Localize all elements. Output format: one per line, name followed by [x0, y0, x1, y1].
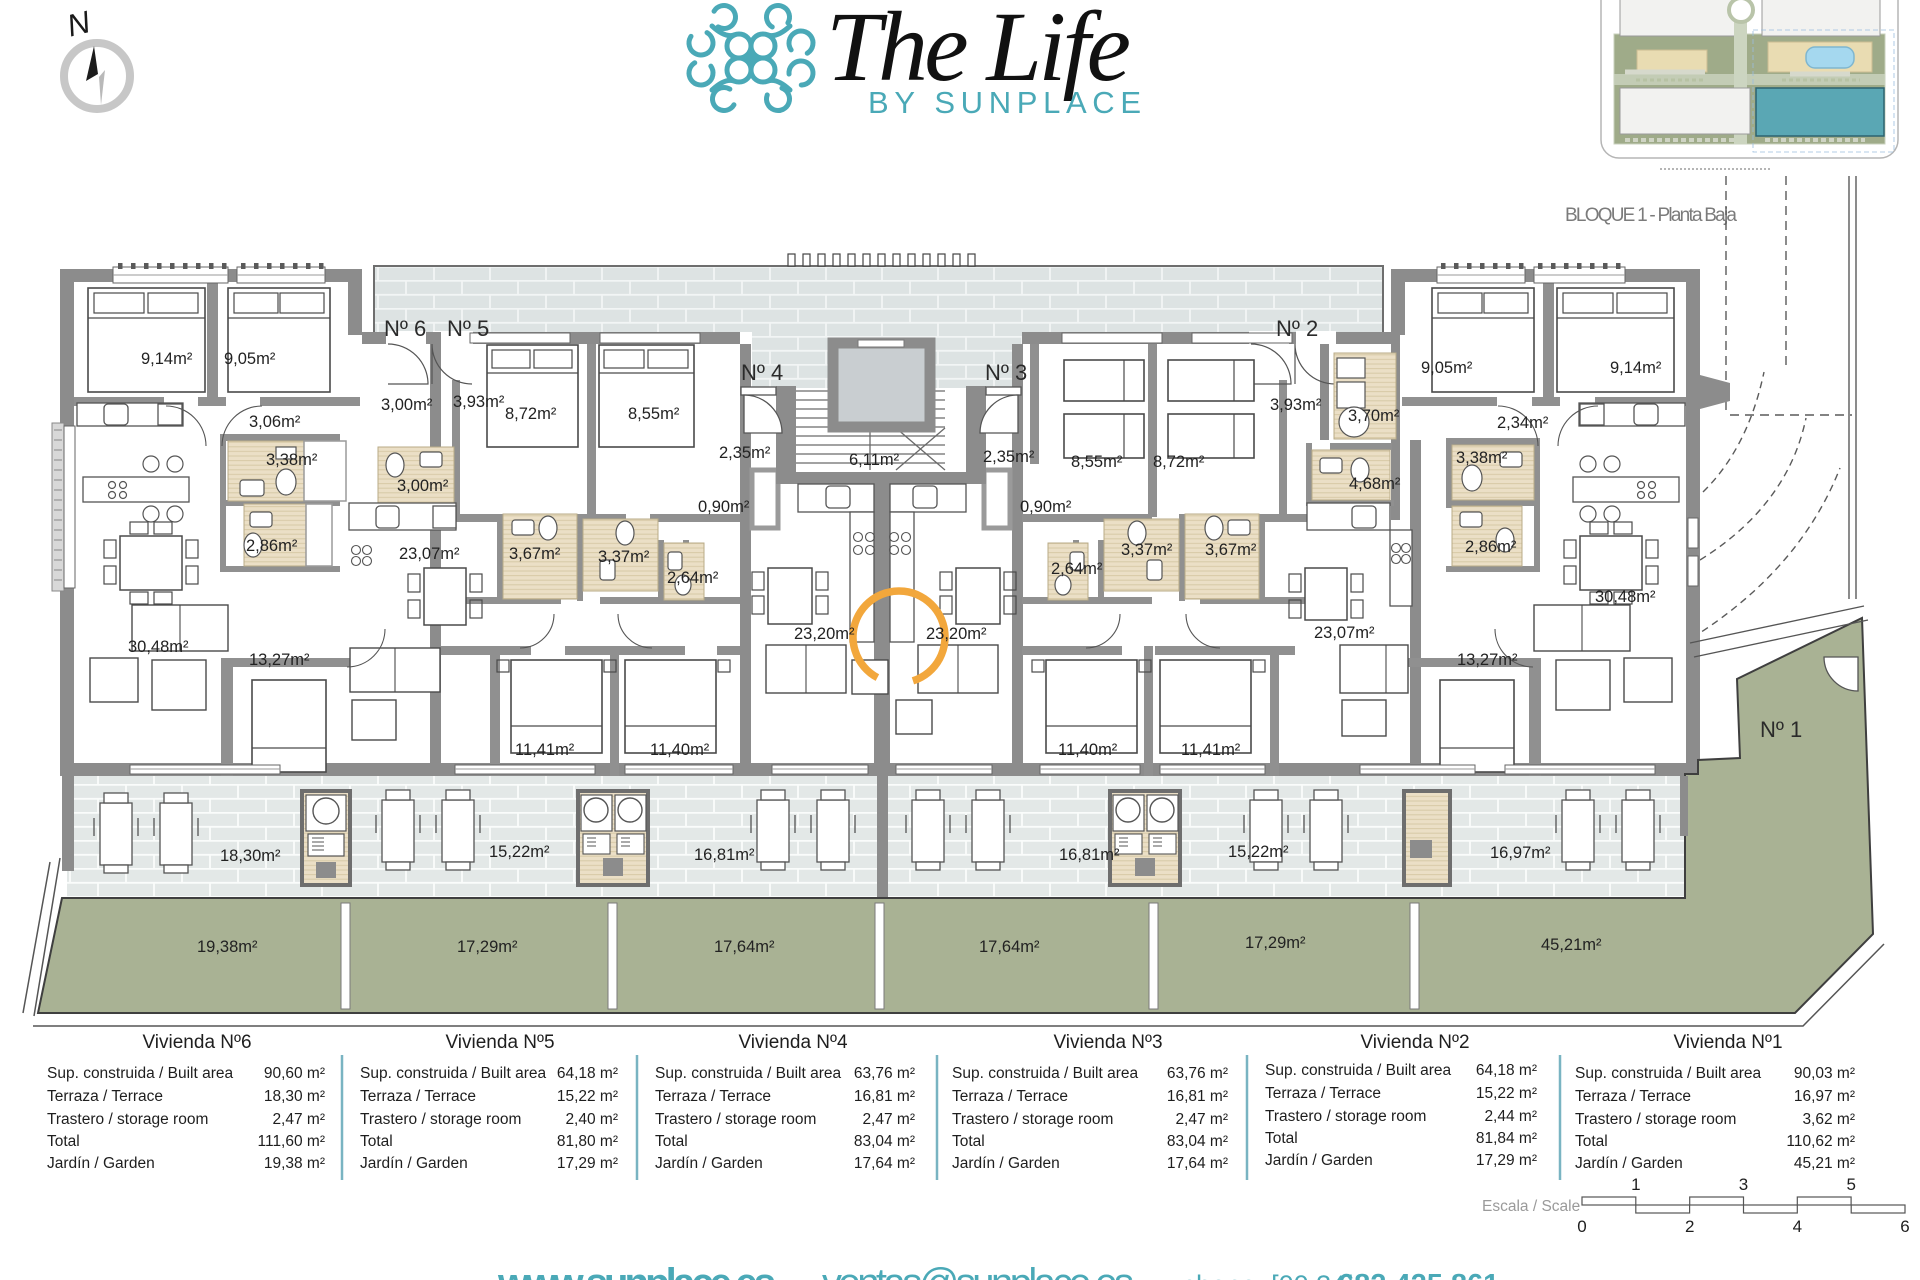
svg-text:4,68m²: 4,68m² — [1349, 475, 1401, 493]
svg-text:18,30m²: 18,30m² — [220, 847, 281, 865]
svg-text:2,35m²: 2,35m² — [719, 444, 771, 462]
svg-text:8,72m²: 8,72m² — [1153, 453, 1205, 471]
svg-text:63,76 m²: 63,76 m² — [854, 1065, 915, 1082]
svg-text:17,64 m²: 17,64 m² — [1167, 1155, 1228, 1172]
svg-text:Sup. construida / Built area: Sup. construida / Built area — [360, 1065, 546, 1082]
svg-text:Terraza / Terrace: Terraza / Terrace — [1265, 1085, 1381, 1102]
svg-text:81,80 m²: 81,80 m² — [557, 1133, 618, 1150]
svg-text:BY SUNPLACE: BY SUNPLACE — [868, 85, 1144, 120]
svg-text:0,90m²: 0,90m² — [698, 498, 750, 516]
svg-text:15,22m²: 15,22m² — [489, 843, 550, 861]
svg-text:9,05m²: 9,05m² — [1421, 359, 1473, 377]
svg-text:16,81m²: 16,81m² — [694, 846, 755, 864]
svg-text:Jardín / Garden: Jardín / Garden — [655, 1155, 763, 1172]
svg-text:19,38 m²: 19,38 m² — [264, 1155, 325, 1172]
svg-text:23,07m²: 23,07m² — [399, 545, 460, 563]
svg-text:15,22m²: 15,22m² — [1228, 843, 1289, 861]
svg-text:Nº 3: Nº 3 — [985, 360, 1027, 385]
svg-text:16,81 m²: 16,81 m² — [854, 1088, 915, 1105]
svg-text:Jardín / Garden: Jardín / Garden — [47, 1155, 155, 1172]
svg-text:13,27m²: 13,27m² — [249, 651, 310, 669]
svg-text:111,60 m²: 111,60 m² — [258, 1133, 326, 1150]
svg-text:Terraza / Terrace: Terraza / Terrace — [1575, 1088, 1691, 1105]
svg-text:ventas@sunplace.es: ventas@sunplace.es — [822, 1261, 1134, 1280]
svg-text:83,04 m²: 83,04 m² — [854, 1133, 915, 1150]
svg-text:8,55m²: 8,55m² — [628, 405, 680, 423]
svg-text:17,29m²: 17,29m² — [457, 938, 518, 956]
svg-text:45,21 m²: 45,21 m² — [1794, 1155, 1855, 1172]
svg-text:16,97 m²: 16,97 m² — [1794, 1088, 1855, 1105]
svg-text:83,04 m²: 83,04 m² — [1167, 1133, 1228, 1150]
svg-text:2,47 m²: 2,47 m² — [272, 1111, 325, 1128]
svg-text:11,41m²: 11,41m² — [515, 741, 575, 759]
svg-text:3: 3 — [1739, 1175, 1748, 1194]
svg-text:81,84 m²: 81,84 m² — [1476, 1130, 1537, 1147]
svg-text:Vivienda Nº1: Vivienda Nº1 — [1673, 1032, 1782, 1053]
svg-text:63,76 m²: 63,76 m² — [1167, 1065, 1228, 1082]
svg-text:Trastero / storage room: Trastero / storage room — [1575, 1111, 1736, 1128]
svg-text:2,47 m²: 2,47 m² — [862, 1111, 915, 1128]
svg-text:8,55m²: 8,55m² — [1071, 453, 1123, 471]
svg-text:Trastero / storage room: Trastero / storage room — [655, 1111, 816, 1128]
svg-text:9,05m²: 9,05m² — [224, 350, 276, 368]
svg-text:Terraza / Terrace: Terraza / Terrace — [47, 1088, 163, 1105]
svg-text:16,81m²: 16,81m² — [1059, 846, 1120, 864]
svg-text:phone: [00 34]: phone: [00 34] — [1181, 1270, 1354, 1280]
svg-text:3,93m²: 3,93m² — [453, 393, 505, 411]
svg-text:3,70m²: 3,70m² — [1348, 407, 1400, 425]
svg-text:Terraza / Terrace: Terraza / Terrace — [952, 1088, 1068, 1105]
svg-text:2,34m²: 2,34m² — [1497, 414, 1549, 432]
svg-text:3,06m²: 3,06m² — [249, 413, 301, 431]
svg-text:3,62 m²: 3,62 m² — [1802, 1111, 1855, 1128]
svg-text:90,03 m²: 90,03 m² — [1794, 1065, 1855, 1082]
svg-text:16,81 m²: 16,81 m² — [1167, 1088, 1228, 1105]
svg-text:30,48m²: 30,48m² — [128, 638, 189, 656]
svg-text:Sup. construida / Built area: Sup. construida / Built area — [1265, 1062, 1451, 1079]
svg-text:-: - — [793, 1261, 806, 1280]
svg-text:3,37m²: 3,37m² — [598, 548, 650, 566]
svg-text:4: 4 — [1793, 1217, 1802, 1236]
svg-text:2,64m²: 2,64m² — [1051, 560, 1103, 578]
svg-text:3,93m²: 3,93m² — [1270, 396, 1322, 414]
svg-text:16,97m²: 16,97m² — [1490, 844, 1551, 862]
svg-text:17,29 m²: 17,29 m² — [1476, 1152, 1537, 1169]
svg-text:64,18 m²: 64,18 m² — [557, 1065, 618, 1082]
svg-text:Vivienda Nº5: Vivienda Nº5 — [445, 1032, 554, 1053]
svg-text:17,64m²: 17,64m² — [979, 938, 1040, 956]
svg-text:17,29m²: 17,29m² — [1245, 934, 1306, 952]
svg-text:23,20m²: 23,20m² — [926, 625, 987, 643]
svg-text:Nº 4: Nº 4 — [741, 360, 783, 385]
svg-text:3,38m²: 3,38m² — [1456, 449, 1508, 467]
svg-text:6,11m²: 6,11m² — [849, 451, 900, 469]
svg-text:682 425 861: 682 425 861 — [1338, 1269, 1499, 1280]
svg-text:0: 0 — [1577, 1217, 1586, 1236]
svg-text:17,29 m²: 17,29 m² — [557, 1155, 618, 1172]
svg-text:2,44 m²: 2,44 m² — [1484, 1108, 1537, 1125]
svg-text:0,90m²: 0,90m² — [1020, 498, 1072, 516]
svg-text:5: 5 — [1846, 1175, 1855, 1194]
svg-text:3,38m²: 3,38m² — [266, 451, 318, 469]
svg-text:2,35m²: 2,35m² — [983, 448, 1035, 466]
svg-text:3,67m²: 3,67m² — [1205, 541, 1257, 559]
svg-text:Nº 2: Nº 2 — [1276, 316, 1318, 341]
svg-text:Jardín / Garden: Jardín / Garden — [1265, 1152, 1373, 1169]
svg-text:Terraza / Terrace: Terraza / Terrace — [360, 1088, 476, 1105]
svg-text:15,22 m²: 15,22 m² — [557, 1088, 618, 1105]
svg-text:64,18 m²: 64,18 m² — [1476, 1062, 1537, 1079]
svg-text:8,72m²: 8,72m² — [505, 405, 557, 423]
svg-text:3,37m²: 3,37m² — [1121, 541, 1173, 559]
svg-text:90,60 m²: 90,60 m² — [264, 1065, 325, 1082]
svg-text:Vivienda Nº3: Vivienda Nº3 — [1053, 1032, 1162, 1053]
svg-text:2,64m²: 2,64m² — [667, 569, 719, 587]
svg-text:23,07m²: 23,07m² — [1314, 624, 1375, 642]
svg-text:Sup. construida / Built area: Sup. construida / Built area — [952, 1065, 1138, 1082]
svg-text:Terraza / Terrace: Terraza / Terrace — [655, 1088, 771, 1105]
svg-text:Total: Total — [47, 1133, 80, 1150]
svg-text:Nº 5: Nº 5 — [447, 316, 489, 341]
svg-text:Total: Total — [952, 1133, 985, 1150]
svg-text:45,21m²: 45,21m² — [1541, 936, 1602, 954]
svg-text:19,38m²: 19,38m² — [197, 938, 258, 956]
svg-text:1: 1 — [1631, 1175, 1640, 1194]
svg-text:13,27m²: 13,27m² — [1457, 651, 1518, 669]
svg-text:15,22 m²: 15,22 m² — [1476, 1085, 1537, 1102]
svg-text:Sup. construida / Built area: Sup. construida / Built area — [47, 1065, 233, 1082]
svg-text:Escala / Scale: Escala / Scale — [1482, 1198, 1580, 1215]
svg-text:6: 6 — [1900, 1217, 1909, 1236]
svg-text:Vivienda Nº6: Vivienda Nº6 — [142, 1032, 251, 1053]
svg-text:3,00m²: 3,00m² — [397, 477, 449, 495]
svg-text:30,48m²: 30,48m² — [1595, 588, 1656, 606]
svg-text:Nº 6: Nº 6 — [384, 316, 426, 341]
svg-text:Sup. construida / Built area: Sup. construida / Built area — [1575, 1065, 1761, 1082]
svg-text:Total: Total — [1575, 1133, 1608, 1150]
svg-text:9,14m²: 9,14m² — [1610, 359, 1662, 377]
svg-text:Vivienda Nº2: Vivienda Nº2 — [1360, 1032, 1469, 1053]
svg-text:11,40m²: 11,40m² — [650, 741, 710, 759]
svg-text:2,86m²: 2,86m² — [1465, 538, 1517, 556]
svg-text:-: - — [1148, 1261, 1161, 1280]
svg-text:Sup. construida / Built area: Sup. construida / Built area — [655, 1065, 841, 1082]
svg-text:3,67m²: 3,67m² — [509, 545, 561, 563]
svg-text:Jardín / Garden: Jardín / Garden — [1575, 1155, 1683, 1172]
svg-text:2,47 m²: 2,47 m² — [1175, 1111, 1228, 1128]
svg-text:Trastero / storage room: Trastero / storage room — [47, 1111, 208, 1128]
svg-text:Trastero / storage room: Trastero / storage room — [360, 1111, 521, 1128]
svg-text:110,62 m²: 110,62 m² — [1786, 1133, 1855, 1150]
svg-text:Total: Total — [1265, 1130, 1298, 1147]
svg-text:23,20m²: 23,20m² — [794, 625, 855, 643]
svg-text:11,41m²: 11,41m² — [1181, 741, 1241, 759]
svg-text:9,14m²: 9,14m² — [141, 350, 193, 368]
svg-text:17,64 m²: 17,64 m² — [854, 1155, 915, 1172]
svg-text:11,40m²: 11,40m² — [1058, 741, 1118, 759]
svg-text:Total: Total — [655, 1133, 688, 1150]
svg-text:www.sunplace.es: www.sunplace.es — [497, 1261, 776, 1280]
svg-text:2,40 m²: 2,40 m² — [565, 1111, 618, 1128]
svg-text:Vivienda Nº4: Vivienda Nº4 — [738, 1032, 847, 1053]
svg-text:Nº 1: Nº 1 — [1760, 717, 1802, 742]
svg-text:2,86m²: 2,86m² — [246, 537, 298, 555]
svg-text:Jardín / Garden: Jardín / Garden — [952, 1155, 1060, 1172]
svg-text:Jardín / Garden: Jardín / Garden — [360, 1155, 468, 1172]
svg-text:18,30 m²: 18,30 m² — [264, 1088, 325, 1105]
svg-text:Trastero / storage room: Trastero / storage room — [952, 1111, 1113, 1128]
svg-text:2: 2 — [1685, 1217, 1694, 1236]
svg-text:17,64m²: 17,64m² — [714, 938, 775, 956]
svg-text:Trastero / storage room: Trastero / storage room — [1265, 1108, 1426, 1125]
svg-text:BLOQUE 1 - Planta Baja: BLOQUE 1 - Planta Baja — [1565, 205, 1737, 226]
svg-text:Total: Total — [360, 1133, 393, 1150]
svg-text:3,00m²: 3,00m² — [381, 396, 433, 414]
